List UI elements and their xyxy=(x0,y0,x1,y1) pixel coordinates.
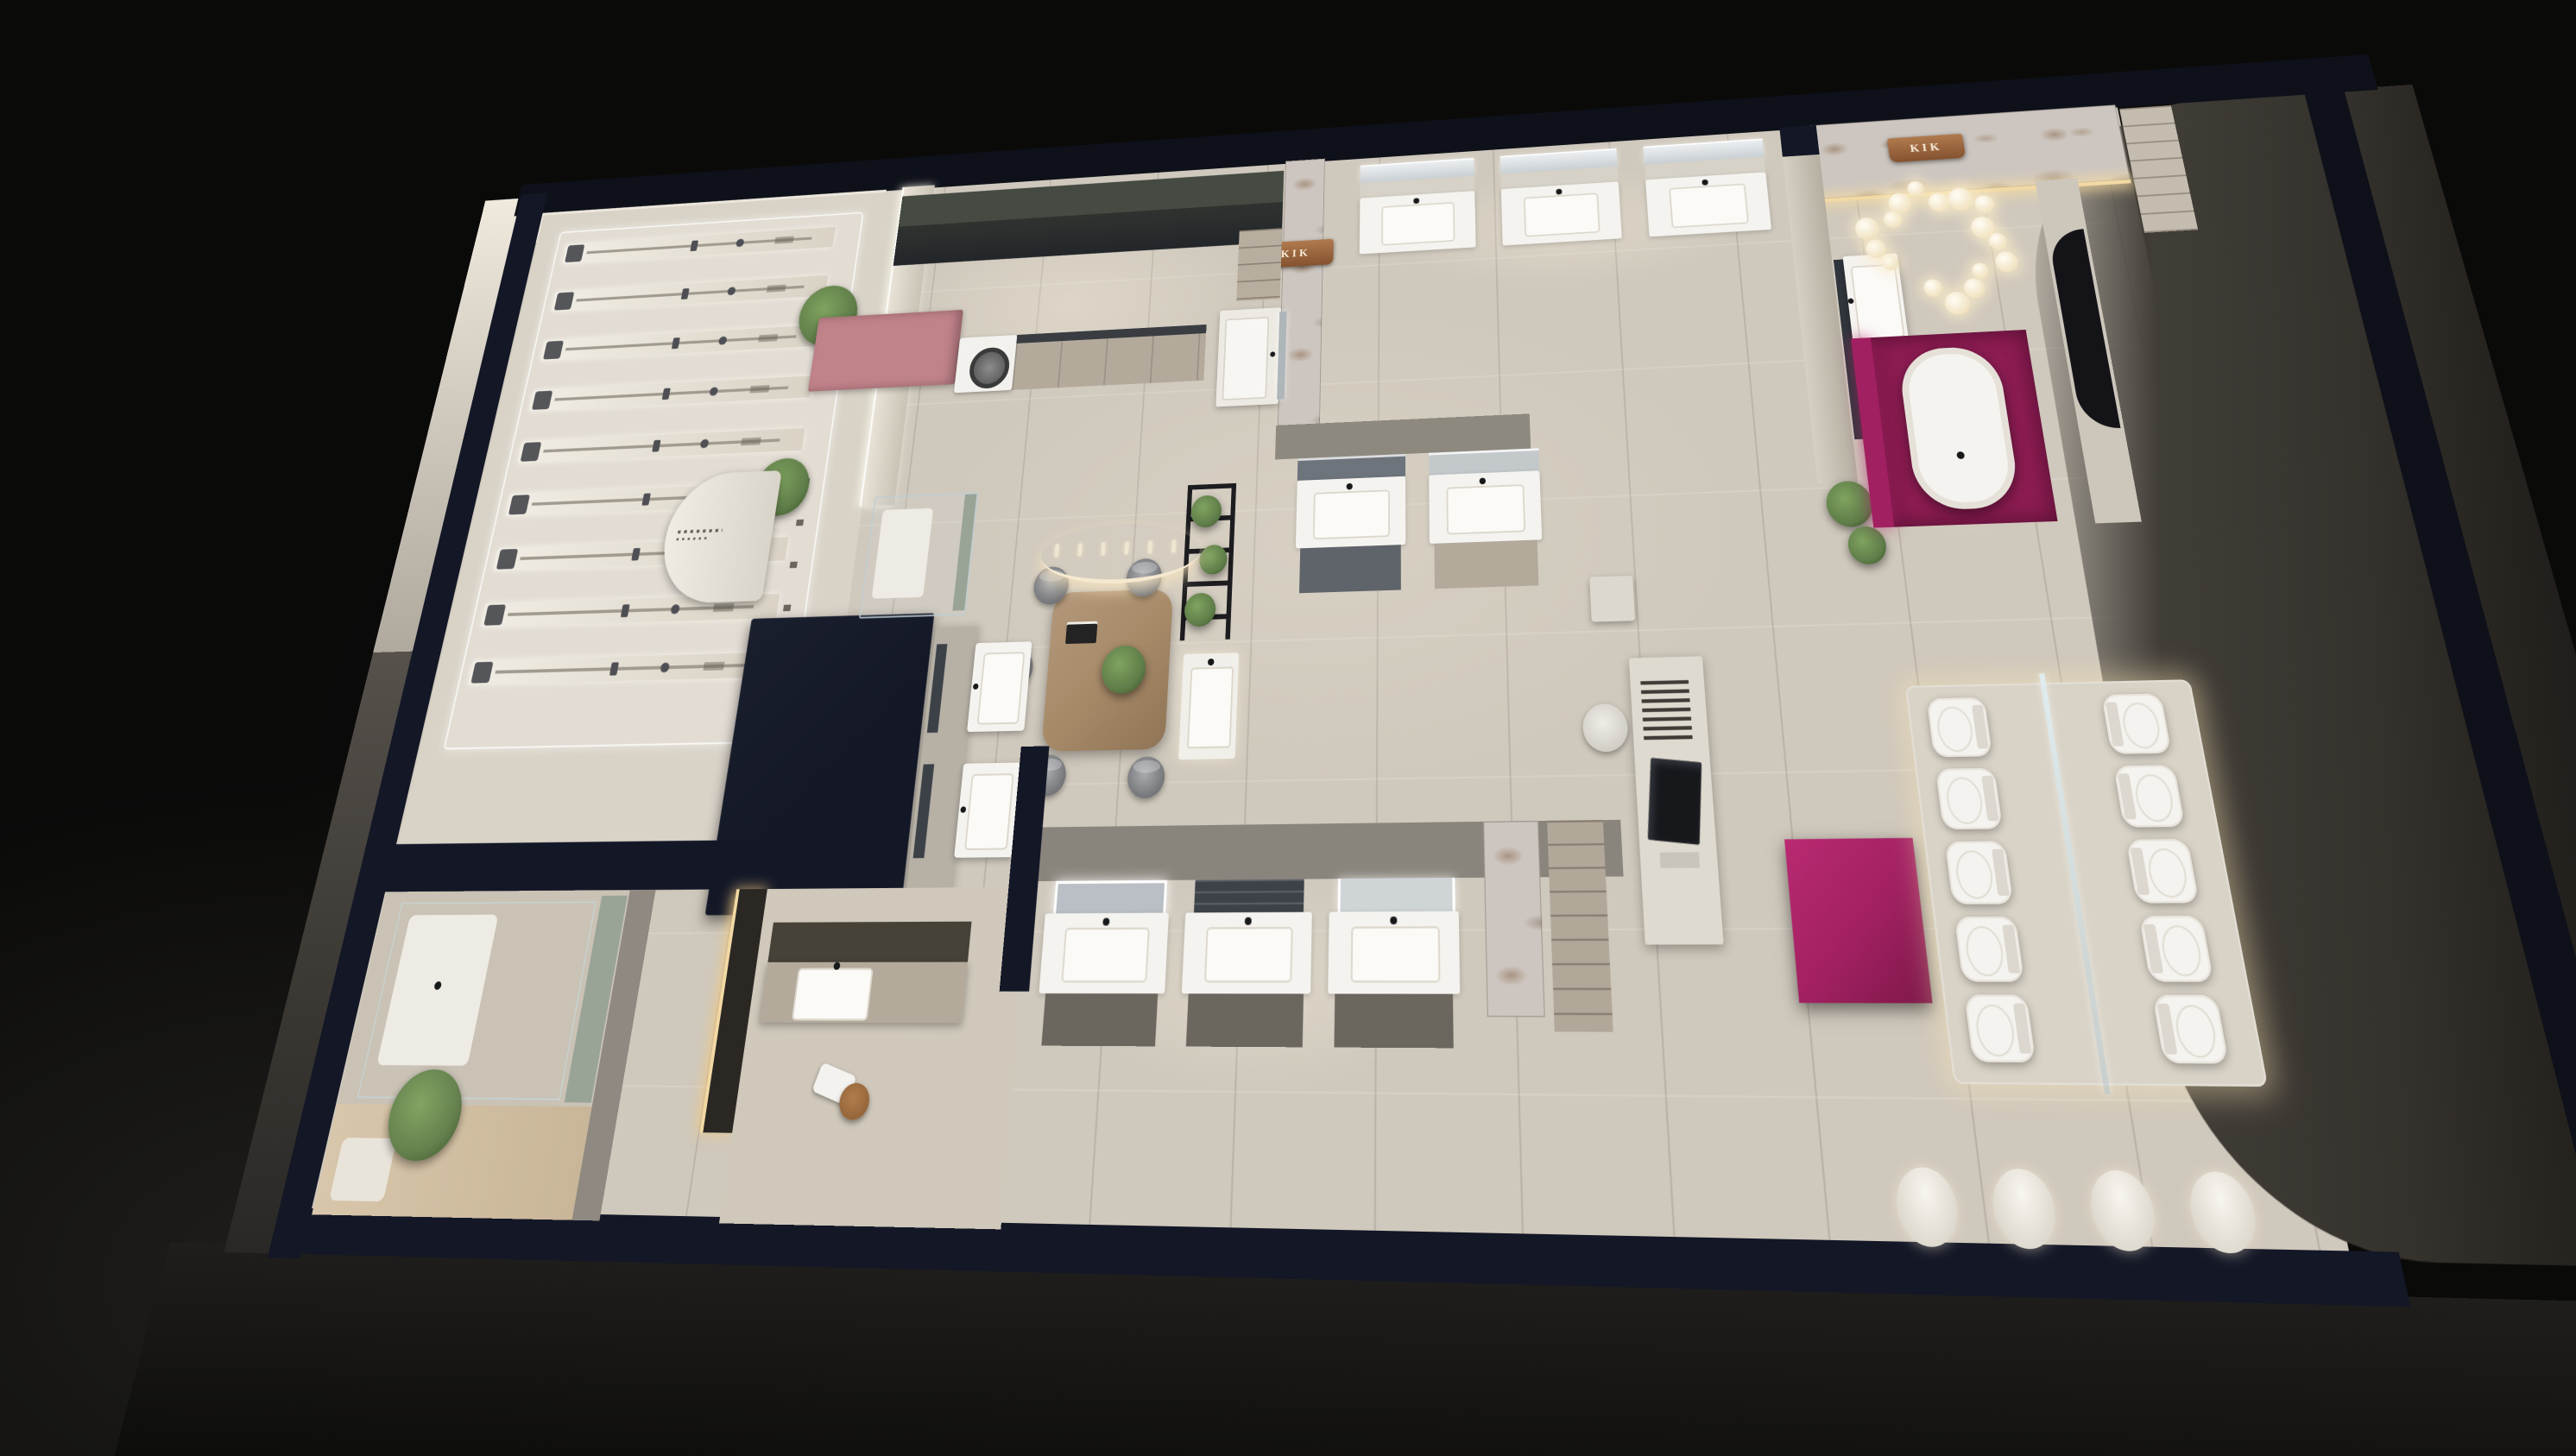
vanity-sink xyxy=(1351,926,1441,982)
shower-valve-icon xyxy=(727,287,736,295)
toilet-seat xyxy=(1973,1005,2017,1057)
price-tag xyxy=(749,385,769,393)
vanity-base xyxy=(1041,993,1158,1046)
hand-shower-icon xyxy=(672,337,680,349)
vanity-sink xyxy=(1381,202,1455,246)
marble-wall-vanity xyxy=(1215,307,1281,407)
basin-display-stand xyxy=(1178,652,1239,760)
toilet-tank xyxy=(1972,705,1989,749)
toilet-seat xyxy=(1944,777,1986,824)
desk-vent-grille xyxy=(1640,680,1693,741)
toilet-seat xyxy=(2172,1005,2219,1058)
vanity-sink xyxy=(792,968,874,1020)
vanity-counter xyxy=(1429,470,1542,544)
hand-shower-icon xyxy=(681,288,690,299)
brand-sign-bath: KIK xyxy=(1887,134,1966,163)
vanity-sink xyxy=(1446,484,1525,535)
toilet xyxy=(2101,693,2172,753)
vanity-mirror xyxy=(1194,879,1304,913)
shower-valve-icon xyxy=(718,337,728,345)
vanity-counter xyxy=(1360,191,1476,254)
vanity-counter xyxy=(1645,172,1771,236)
vanity-counter xyxy=(1296,476,1405,549)
toilet xyxy=(1964,994,2036,1062)
shower-valve-icon xyxy=(736,239,745,248)
shower-head-icon xyxy=(543,341,564,360)
faucet-icon xyxy=(1847,299,1853,305)
toilet xyxy=(1935,768,2003,829)
shower-head-icon xyxy=(521,442,542,462)
vanity-unit xyxy=(1035,880,1171,1047)
vanity-unit xyxy=(1500,148,1622,246)
price-tag xyxy=(774,236,793,244)
tub-drain-icon xyxy=(1956,451,1965,459)
faucet-icon xyxy=(1245,917,1252,925)
faucet-icon xyxy=(960,806,966,812)
faucet-icon xyxy=(1413,198,1419,204)
toilet xyxy=(1945,841,2014,904)
toilet-tank xyxy=(1992,849,2010,896)
bath-divider-cap xyxy=(1779,125,1819,157)
tall-cabinet xyxy=(1547,820,1613,1032)
vanity-mirror xyxy=(1338,878,1455,911)
toilet-tank xyxy=(1981,776,1998,822)
shower-head-icon xyxy=(508,495,530,514)
toilet xyxy=(2126,839,2200,904)
showroom-render: KIK xyxy=(0,0,2576,1456)
drain-icon xyxy=(433,981,442,990)
shower-valve-icon xyxy=(670,604,680,614)
toilet xyxy=(2113,765,2185,827)
pendant-hook-icon xyxy=(1171,539,1176,552)
center-vanity-beige xyxy=(1429,448,1544,592)
shower-head-icon xyxy=(554,292,575,310)
vanity-counter xyxy=(1328,911,1460,994)
faucet-icon xyxy=(1347,483,1353,490)
vanity-base xyxy=(1434,539,1538,589)
faucet-icon xyxy=(1102,918,1109,926)
brand-sign-center-label: KIK xyxy=(1281,247,1311,261)
vanity-sink xyxy=(1061,928,1149,983)
hand-shower-icon xyxy=(690,240,698,251)
hand-shower-icon xyxy=(662,388,671,400)
marble-wall-vanity-sink xyxy=(1222,317,1269,400)
vanity-unit xyxy=(1327,878,1461,1048)
vanity-sink xyxy=(1524,192,1601,236)
vanity-unit xyxy=(1360,158,1476,254)
partition-sink-a xyxy=(967,641,1032,732)
vanity-base xyxy=(1186,993,1304,1047)
toilet-seat xyxy=(1954,850,1996,899)
shower-head-icon xyxy=(470,662,493,684)
faucet-icon xyxy=(1556,189,1562,195)
partition-sink-b xyxy=(954,762,1021,857)
toilet xyxy=(1927,697,1993,758)
hand-shower-icon xyxy=(652,440,660,452)
faucet-icon xyxy=(1208,659,1215,665)
display-cube xyxy=(1589,576,1635,622)
vanity-sink xyxy=(1204,927,1293,983)
shower-valve-icon xyxy=(660,663,670,673)
pendant-hook-icon xyxy=(1148,540,1152,553)
marble-feature-wall-center xyxy=(1277,159,1325,451)
price-tag xyxy=(703,662,724,671)
price-tag xyxy=(758,334,778,342)
vanity-sink xyxy=(964,773,1014,850)
vanity-sink xyxy=(977,652,1026,725)
toilet-seat xyxy=(1935,706,1975,753)
hand-shower-icon xyxy=(631,548,641,561)
price-tag xyxy=(713,603,735,612)
laundry-pink-island xyxy=(808,310,963,392)
price-tag xyxy=(767,285,786,293)
faucet-icon xyxy=(1480,477,1486,484)
toilet-seat xyxy=(2119,703,2163,749)
toilet-seat xyxy=(2158,925,2205,977)
desk-monitor xyxy=(1648,758,1702,845)
vanity-unit xyxy=(1643,139,1771,237)
vanity-base xyxy=(1299,545,1401,593)
center-vanity-dark xyxy=(1294,454,1405,596)
price-tag xyxy=(741,438,761,446)
shower-valve-icon xyxy=(699,439,709,449)
washer-door-icon xyxy=(968,347,1012,390)
vanity-sink xyxy=(1669,183,1749,228)
hand-shower-icon xyxy=(621,604,630,617)
vanity-base xyxy=(1334,993,1453,1048)
faucet-icon xyxy=(1270,351,1275,356)
shower-head-icon xyxy=(496,549,518,570)
shower-head-icon xyxy=(532,391,552,410)
faucet-icon xyxy=(1390,917,1397,924)
stool-room-mirror-band xyxy=(767,922,972,966)
shelf-unit-center xyxy=(1236,228,1282,301)
brand-sign-bath-label: KIK xyxy=(1910,141,1943,154)
shower-head-icon xyxy=(565,244,584,262)
vanity-unit xyxy=(1179,879,1313,1047)
toilet xyxy=(1954,917,2024,982)
magenta-cabinet xyxy=(1784,838,1933,1004)
desk-keyboard xyxy=(1659,852,1700,868)
toilet-seat xyxy=(1963,926,2006,977)
marble-column xyxy=(1483,821,1545,1017)
hand-shower-icon xyxy=(609,662,619,675)
shower-head-icon xyxy=(483,604,506,625)
shower-valve-icon xyxy=(709,387,718,395)
toilet-seat xyxy=(2132,774,2177,823)
vanity-sink xyxy=(1313,489,1390,539)
floor-plane: KIK xyxy=(276,82,2391,1299)
vanity-sink xyxy=(1850,264,1904,340)
vanity-counter xyxy=(1501,181,1622,245)
glass-shower-enclosure xyxy=(859,492,979,618)
shower-tray xyxy=(872,508,934,599)
wall-southwest xyxy=(382,840,748,892)
hand-shower-icon xyxy=(641,493,651,505)
washing-machine xyxy=(954,335,1018,393)
table-book xyxy=(1065,621,1097,644)
vanity-counter xyxy=(1182,912,1312,994)
stand-basin-sink xyxy=(1187,666,1234,748)
faucet-icon xyxy=(1702,180,1708,186)
laundry-cabinets xyxy=(1012,325,1207,390)
vanity-counter xyxy=(1039,913,1169,994)
stool-room-vanity xyxy=(760,962,968,1024)
faucet-icon xyxy=(973,684,979,690)
toilet-seat xyxy=(2145,848,2191,898)
toilet-tank xyxy=(2106,702,2125,746)
